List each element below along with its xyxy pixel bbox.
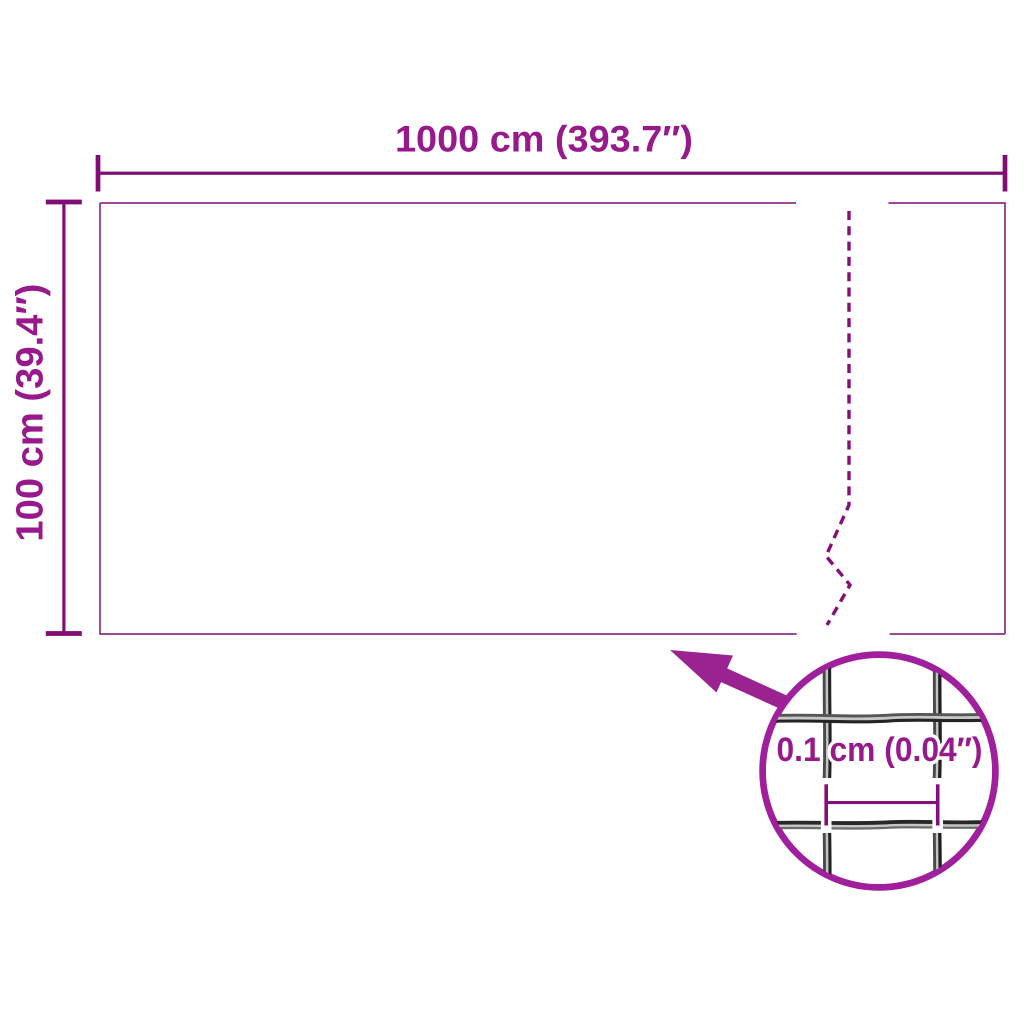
svg-text:1000 cm (393.7″): 1000 cm (393.7″): [395, 119, 693, 160]
svg-text:100 cm (39.4″): 100 cm (39.4″): [10, 284, 52, 542]
svg-text:0.1 cm (0.04″): 0.1 cm (0.04″): [777, 731, 983, 769]
